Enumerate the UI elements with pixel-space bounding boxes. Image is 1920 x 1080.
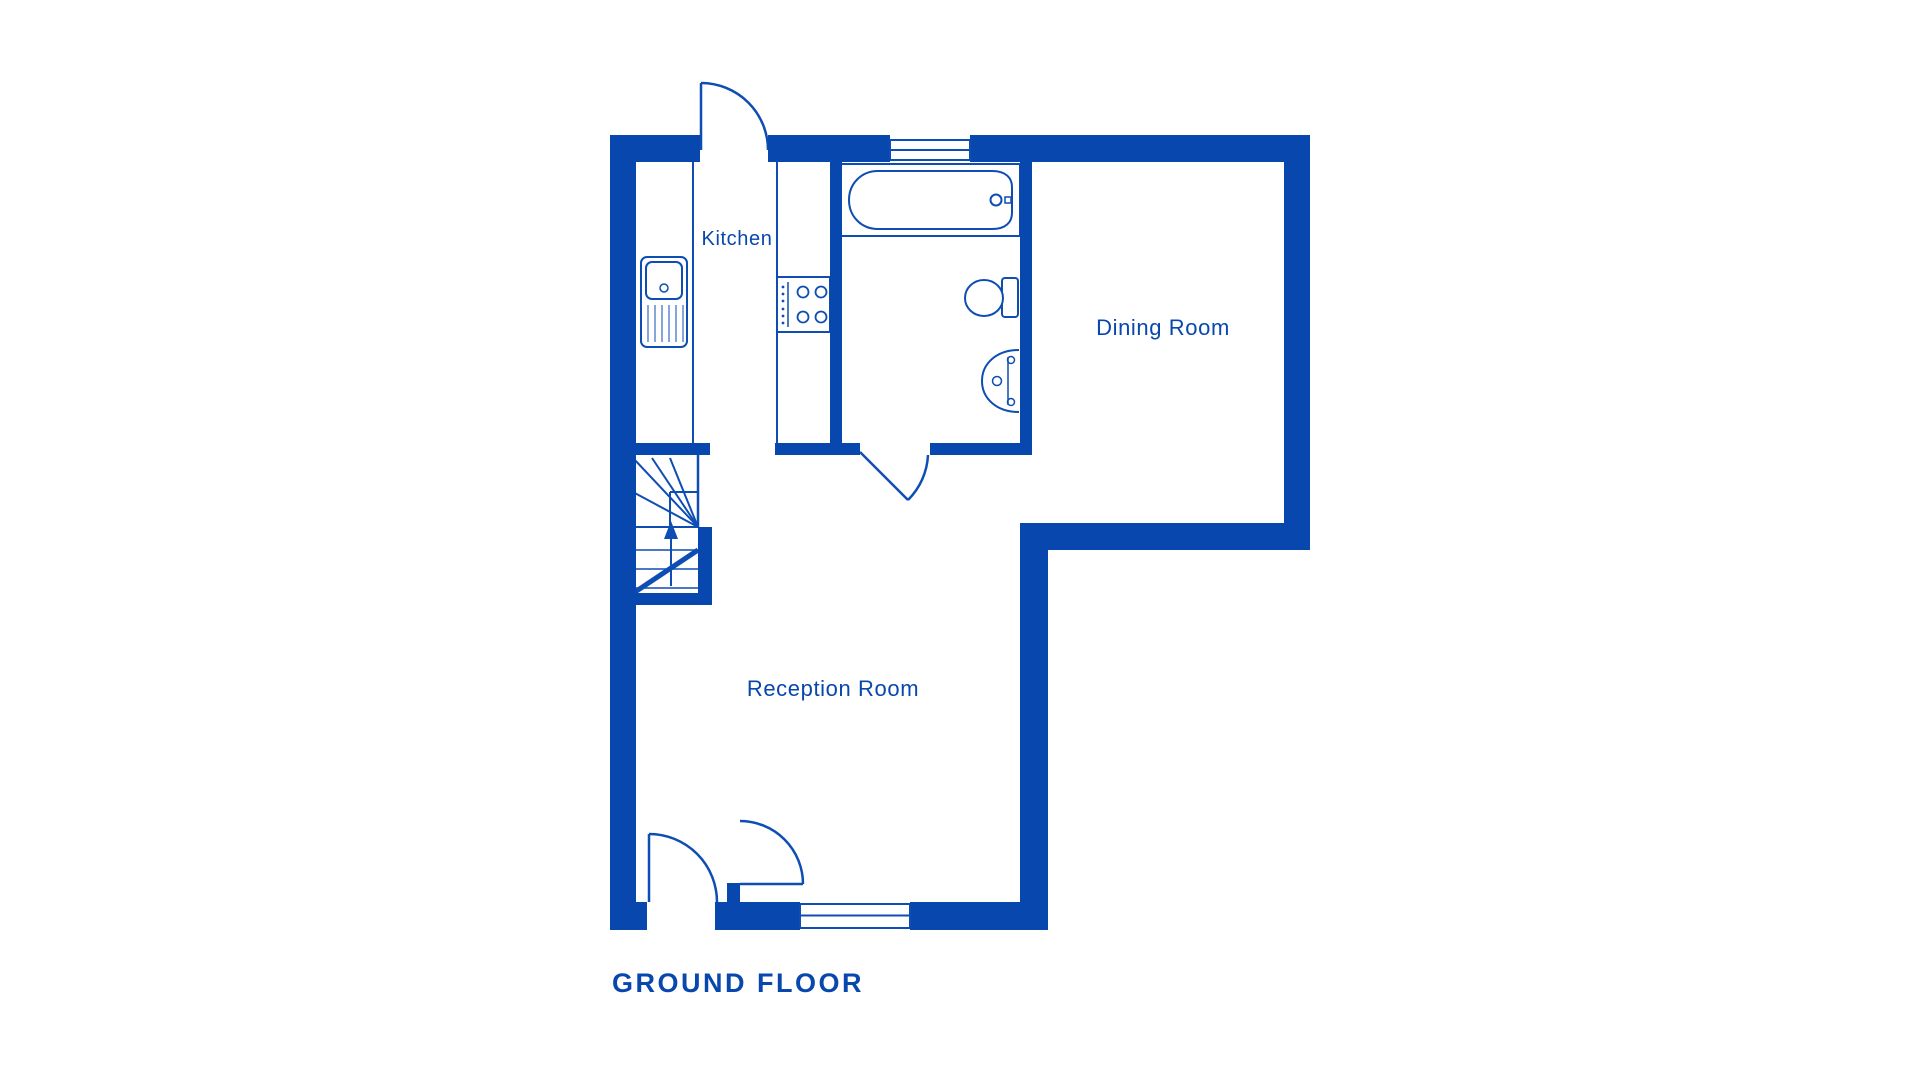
top-wall-mid [768,135,890,162]
reception-right-wall [1020,550,1048,930]
top-wall-right [970,135,1310,162]
kitchen-counters [693,162,777,443]
bottom-wall-right [910,902,1048,930]
hall-wall-stub [727,883,740,902]
bottom-wall-left [610,902,647,930]
kitchen-door-icon [701,83,768,150]
bottom-wall-mid [715,902,800,930]
bathroom-door-icon [860,452,928,500]
bathroom-bottom-wall [930,443,1020,455]
hob-icon [777,277,830,332]
front-door-icon [649,834,717,902]
hall-door-icon [740,821,803,884]
left-wall [610,135,636,930]
right-wall [1284,135,1310,550]
toilet-icon [965,278,1018,317]
stairs-up-arrow-icon [664,521,678,539]
stairs-top-wall [636,443,710,455]
dining-room-label: Dining Room [1096,315,1230,340]
bathtub-icon [841,164,1020,236]
kitchen-label: Kitchen [702,228,773,250]
reception-room-label: Reception Room [747,676,919,701]
window-bottom-icon [800,904,910,928]
wash-basin-icon [982,350,1019,412]
floorplan-drawing: Kitchen Dining Room Reception Room GROUN… [0,0,1920,1080]
staircase-icon [633,455,698,592]
dining-bottom-wall [1020,523,1310,550]
stairs-bottom-wall [633,593,712,605]
kitchen-bottom-wall [775,443,860,455]
floor-title: GROUND FLOOR [612,968,864,998]
kitchen-bathroom-wall [830,162,842,455]
window-top-icon [890,140,970,160]
walls [610,135,1310,930]
floorplan-page: Kitchen Dining Room Reception Room GROUN… [0,0,1920,1080]
kitchen-sink-icon [641,257,687,347]
bathroom-dining-wall [1020,162,1032,455]
